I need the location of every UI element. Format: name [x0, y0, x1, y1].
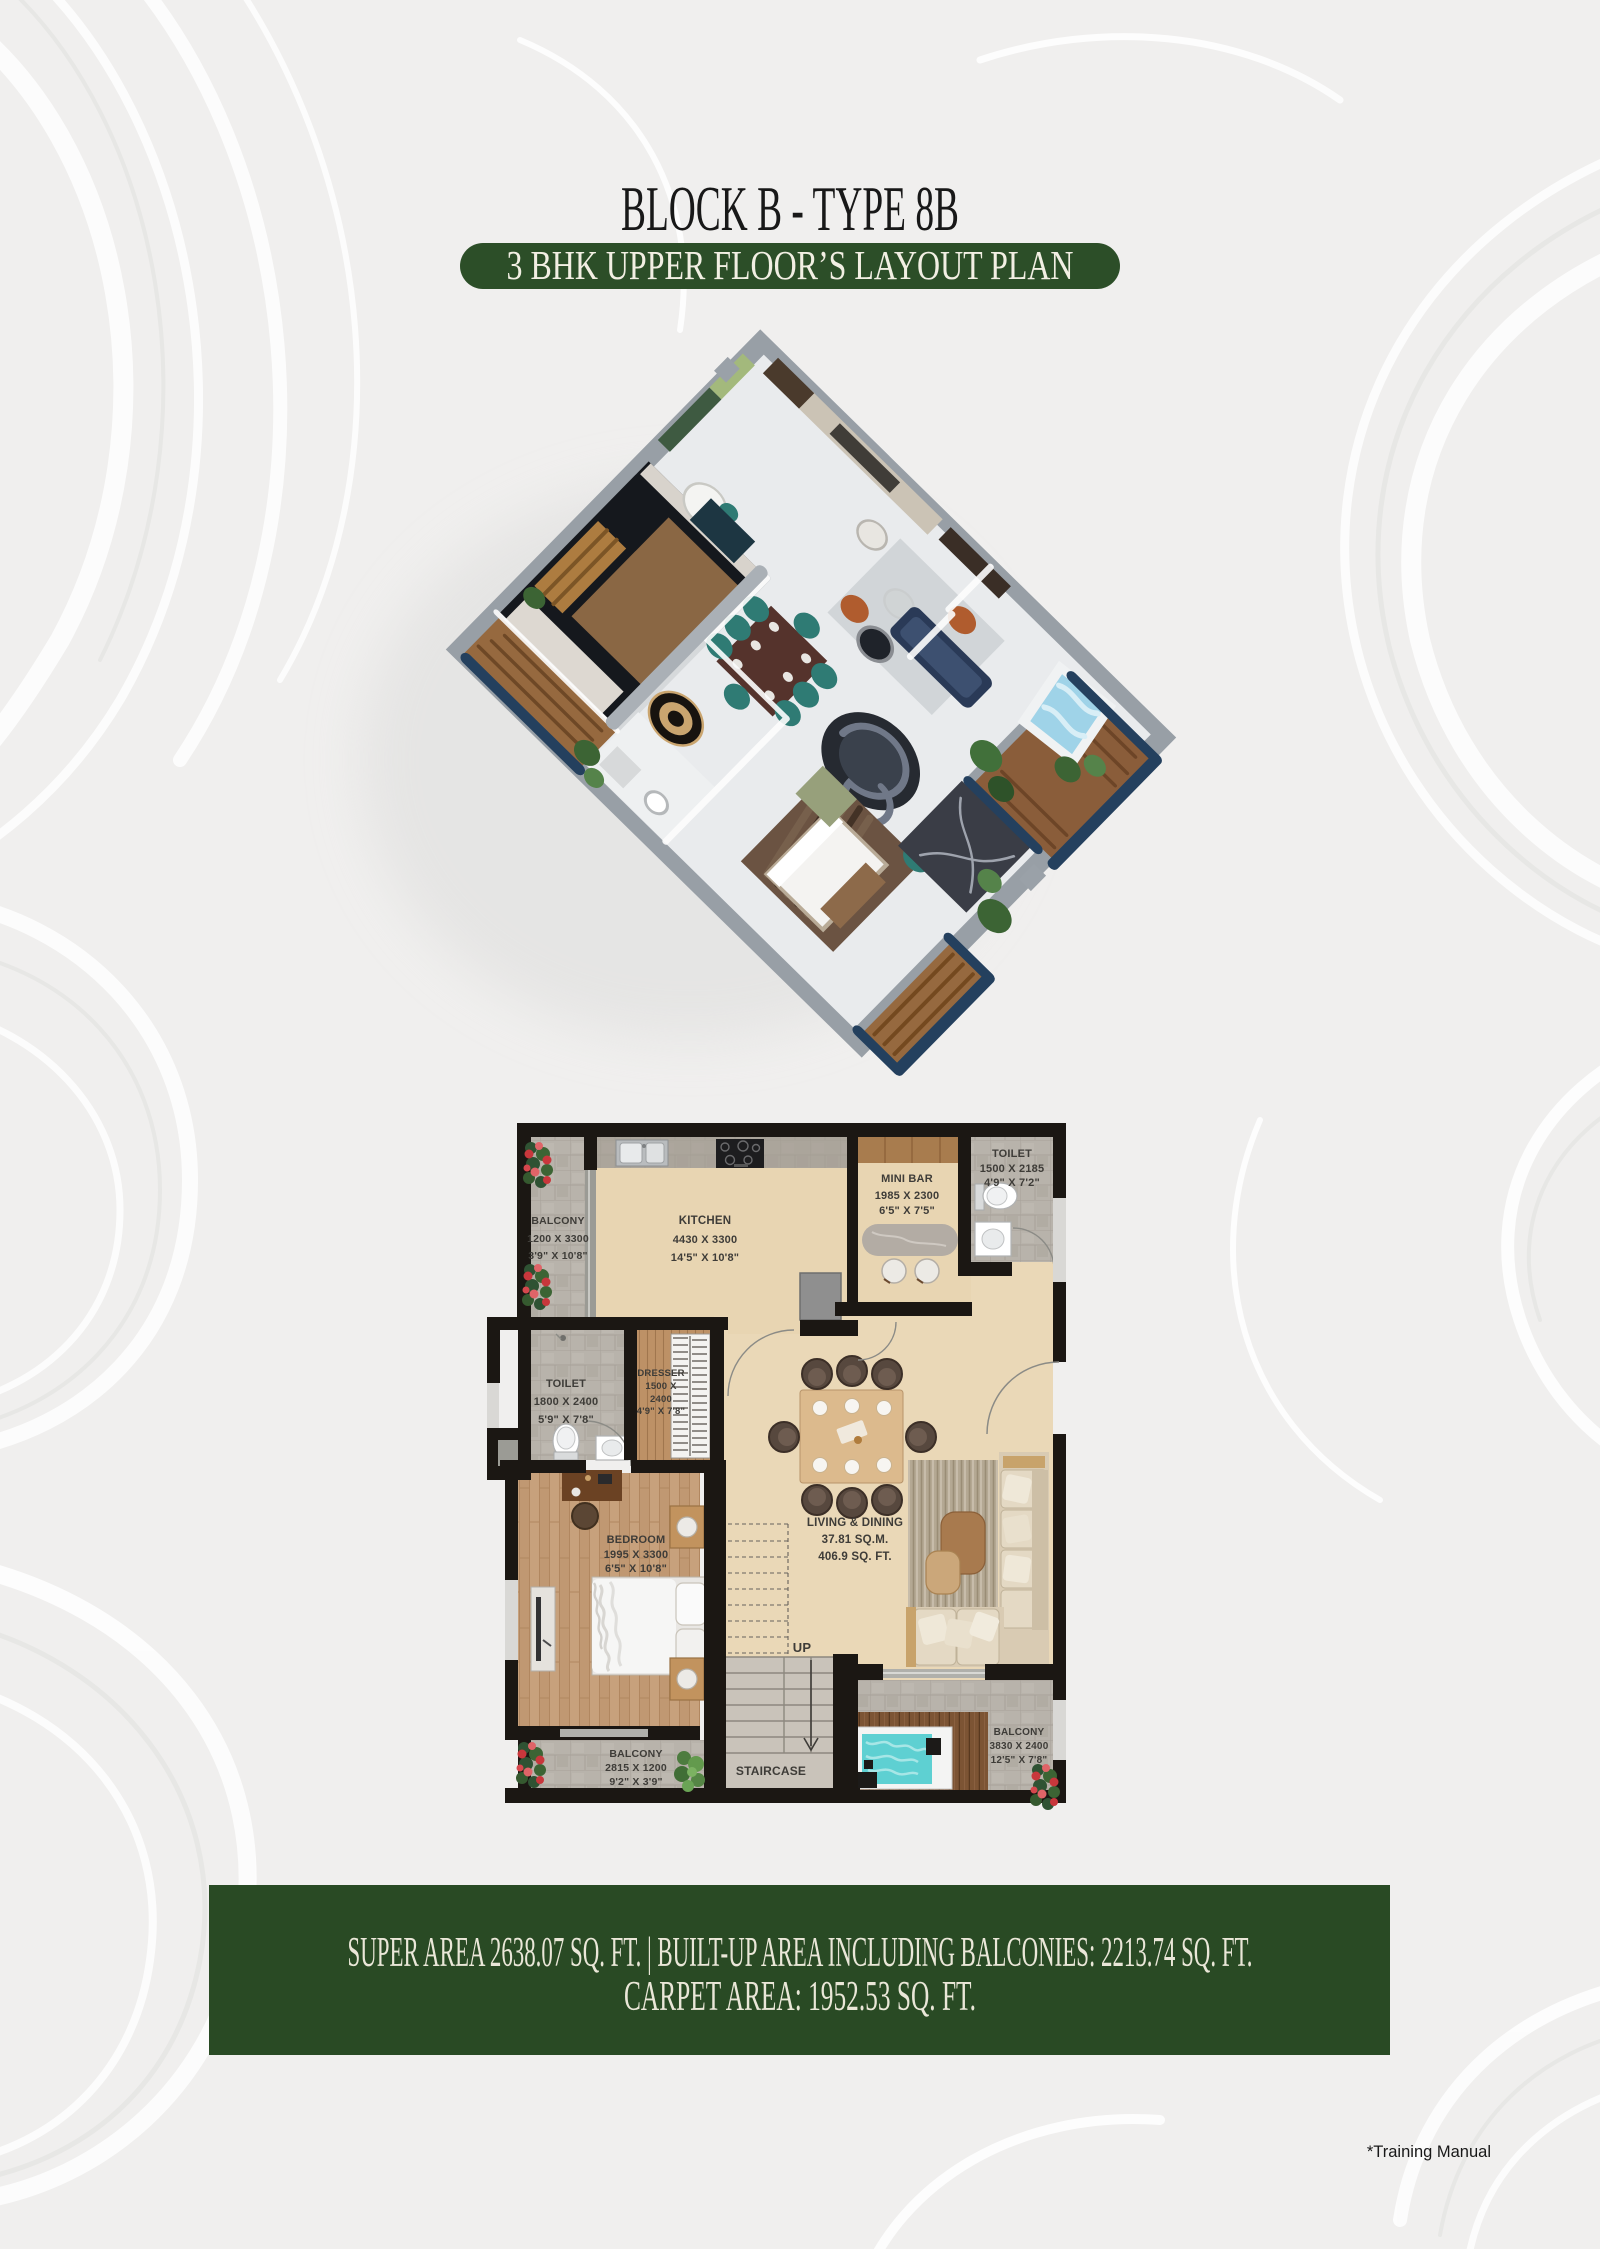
svg-text:3830 X 2400: 3830 X 2400 [990, 1741, 1049, 1752]
svg-text:1800 X 2400: 1800 X 2400 [534, 1396, 599, 1408]
svg-text:LIVING & DINING: LIVING & DINING [807, 1517, 903, 1529]
svg-text:BEDROOM: BEDROOM [607, 1534, 666, 1546]
svg-text:BALCONY: BALCONY [994, 1727, 1045, 1738]
svg-text:2815 X 1200: 2815 X 1200 [605, 1762, 667, 1774]
svg-text:1995 X 3300: 1995 X 3300 [604, 1549, 669, 1561]
svg-text:TOILET: TOILET [546, 1378, 586, 1390]
svg-text:TOILET: TOILET [992, 1148, 1032, 1160]
svg-text:37.81 SQ.M.: 37.81 SQ.M. [822, 1534, 889, 1546]
svg-text:5'9" X 7'8": 5'9" X 7'8" [538, 1414, 594, 1426]
svg-text:6'5" X 10'8": 6'5" X 10'8" [605, 1563, 667, 1575]
svg-text:406.9 SQ. FT.: 406.9 SQ. FT. [818, 1551, 892, 1563]
svg-text:4'9" X 7'8": 4'9" X 7'8" [637, 1406, 685, 1417]
svg-text:12'5" X 7'8": 12'5" X 7'8" [991, 1755, 1048, 1766]
svg-text:CARPET AREA: 1952.53 SQ. F: CARPET AREA: 1952.53 SQ. FT. [624, 1974, 976, 2020]
svg-text:*Training Manual: *Training Manual [1367, 2143, 1491, 2161]
svg-text:3'9" X 10'8": 3'9" X 10'8" [528, 1250, 587, 1262]
svg-text:3 BHK UPPER FLOOR’S LAYOUT PLA: 3 BHK UPPER FLOOR’S LAYOUT PLAN [507, 242, 1074, 288]
svg-text:MINI BAR: MINI BAR [881, 1173, 933, 1185]
svg-text:6'5" X 7'5": 6'5" X 7'5" [879, 1205, 935, 1217]
svg-text:DRESSER: DRESSER [637, 1368, 684, 1379]
svg-text:1500 X: 1500 X [645, 1381, 677, 1392]
svg-text:STAIRCASE: STAIRCASE [736, 1764, 806, 1778]
svg-text:4430 X 3300: 4430 X 3300 [673, 1234, 738, 1246]
svg-text:BALCONY: BALCONY [531, 1215, 584, 1227]
svg-text:SUPER AREA 2638.07 SQ. FT.: SUPER AREA 2638.07 SQ. FT. | BUILT-UP AR… [348, 1930, 1253, 1976]
svg-text:2400: 2400 [650, 1394, 672, 1405]
svg-text:KITCHEN: KITCHEN [679, 1215, 732, 1227]
svg-text:1985 X 2300: 1985 X 2300 [875, 1190, 940, 1202]
svg-text:9'2" X 3'9": 9'2" X 3'9" [609, 1776, 662, 1788]
svg-text:4'9" X 7'2": 4'9" X 7'2" [984, 1177, 1040, 1189]
svg-text:BALCONY: BALCONY [609, 1748, 662, 1760]
svg-text:1500 X 2185: 1500 X 2185 [980, 1163, 1045, 1175]
svg-text:14'5" X 10'8": 14'5" X 10'8" [671, 1252, 739, 1264]
svg-text:BLOCK B - TYPE 8B: BLOCK B - TYPE 8B [621, 173, 959, 244]
svg-text:1200 X 3300: 1200 X 3300 [527, 1233, 589, 1245]
svg-text:UP: UP [793, 1640, 812, 1655]
